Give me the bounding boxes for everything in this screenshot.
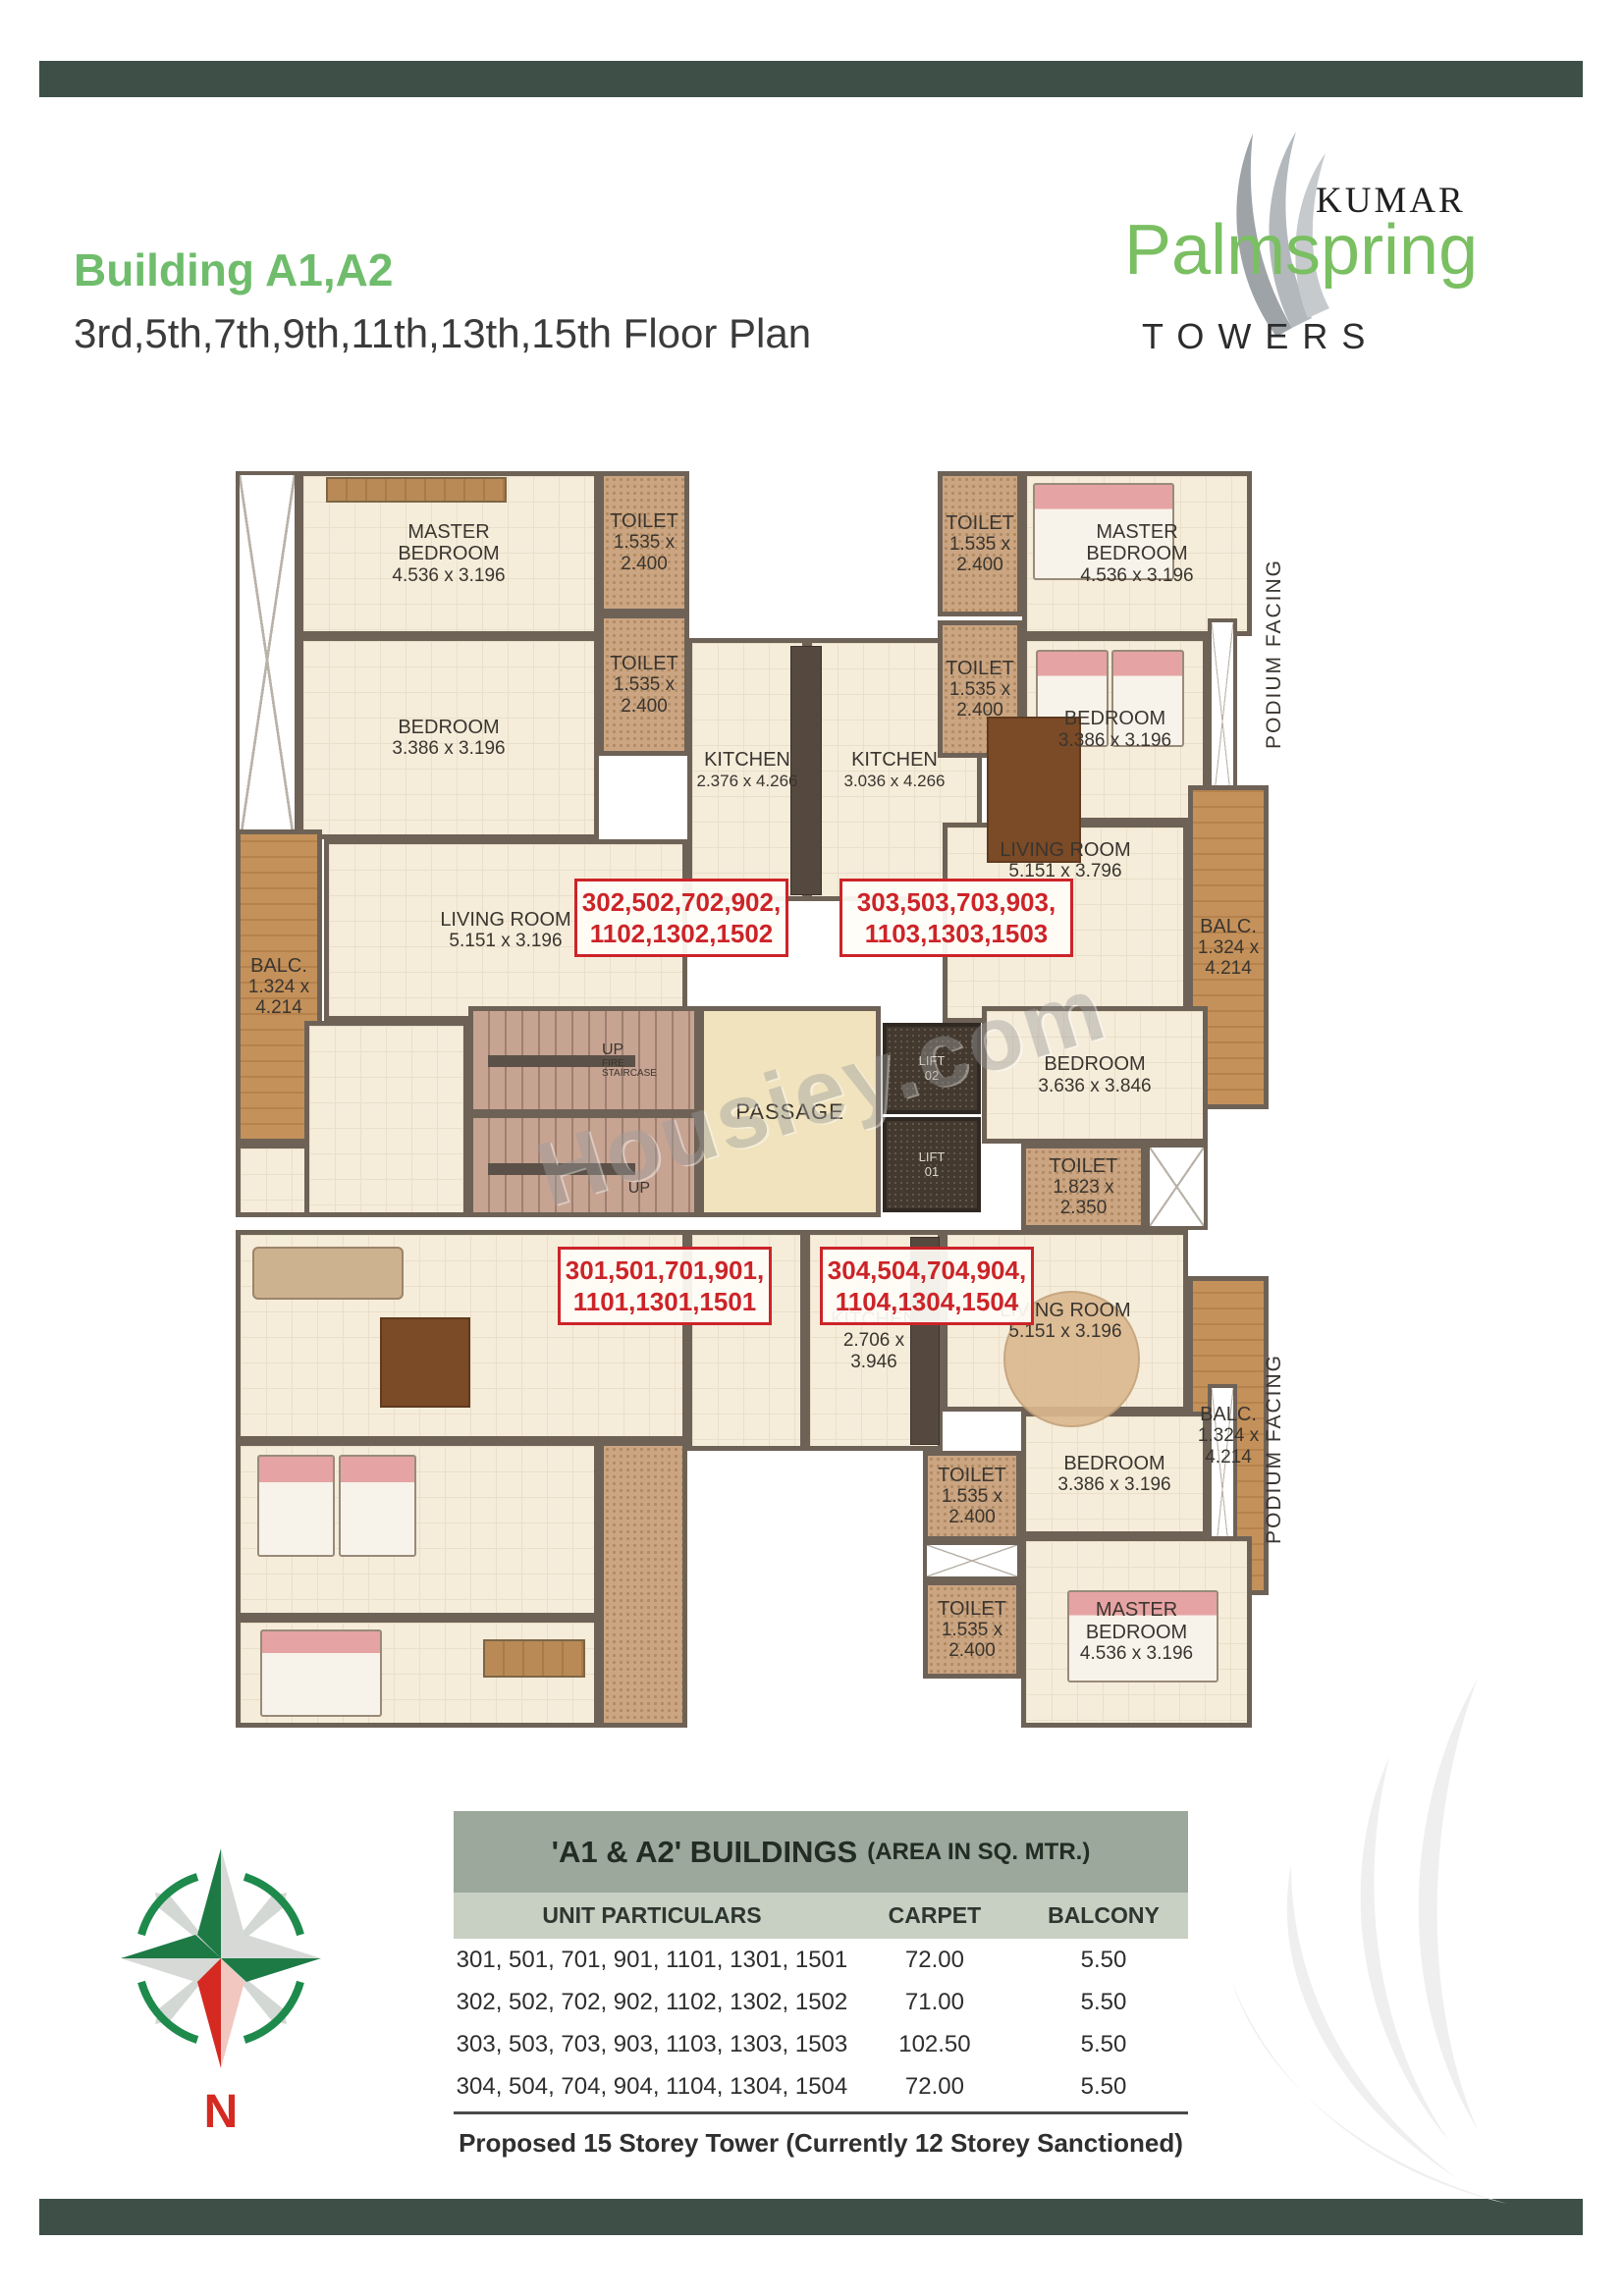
room-name: BALC.: [1193, 1404, 1264, 1425]
room-kitchen-left: KITCHEN 2.376 x 4.266: [687, 638, 807, 901]
cell-balcony: 5.50: [1019, 1947, 1188, 1974]
room-label: TOILET 1.535 x 2.400: [606, 653, 682, 717]
unit-line-2: 1104,1304,1504: [828, 1286, 1026, 1318]
room-toilet-top-left-1: TOILET 1.535 x 2.400: [599, 471, 689, 614]
page-title: Building A1,A2: [74, 243, 393, 296]
room-dims: 1.535 x 2.400: [934, 1486, 1010, 1528]
cell-carpet: 102.50: [850, 2031, 1019, 2058]
room-dims: 3.386 x 3.196: [1058, 730, 1171, 751]
room-dims: 1.324 x 4.214: [241, 977, 317, 1019]
room-dims: 2.376 x 4.266: [696, 772, 797, 790]
area-table: 'A1 & A2' BUILDINGS (AREA IN SQ. MTR.) U…: [454, 1811, 1188, 2159]
top-green-band: [39, 61, 1583, 97]
unit-box-304: 304,504,704,904, 1104,1304,1504: [820, 1247, 1034, 1325]
table-row: 304, 504, 704, 904, 1104, 1304, 1504 72.…: [454, 2065, 1188, 2108]
room-toilet-top-left-2: TOILET 1.535 x 2.400: [599, 614, 689, 756]
room-label: BALC. 1.324 x 4.214: [1193, 916, 1264, 980]
unit-box-301: 301,501,701,901, 1101,1301,1501: [558, 1247, 772, 1325]
room-name: LIVING ROOM: [440, 909, 570, 931]
page-subtitle: 3rd,5th,7th,9th,11th,13th,15th Floor Pla…: [74, 310, 811, 357]
room-label: TOILET 1.535 x 2.400: [934, 1465, 1010, 1528]
table-row: 302, 502, 702, 902, 1102, 1302, 1502 71.…: [454, 1981, 1188, 2023]
logo-palmspring-text: Palmspring: [1124, 210, 1478, 291]
cell-units: 303, 503, 703, 903, 1103, 1303, 1503: [454, 2031, 850, 2058]
room-name: BEDROOM: [1057, 1453, 1170, 1474]
unit-box-303: 303,503,703,903, 1103,1303,1503: [839, 879, 1073, 957]
unit-line-1: 304,504,704,904,: [828, 1255, 1026, 1287]
column-balcony: BALCONY: [1019, 1902, 1188, 1929]
brochure-page: Building A1,A2 3rd,5th,7th,9th,11th,13th…: [0, 0, 1624, 2296]
room-dims: 3.036 x 4.266: [843, 772, 945, 790]
room-name: MASTER BEDROOM: [1082, 521, 1192, 565]
unit-line-1: 302,502,702,902,: [582, 886, 781, 919]
compass-rose: N: [103, 1831, 339, 2145]
furniture-bed: [260, 1629, 382, 1717]
unit-line-1: 303,503,703,903,: [857, 886, 1056, 919]
room-name: TOILET: [606, 653, 682, 674]
table-title: 'A1 & A2' BUILDINGS: [552, 1835, 858, 1870]
cell-balcony: 5.50: [1019, 1989, 1188, 2016]
room-bedroom-bottom-right: BEDROOM 3.386 x 3.196: [1021, 1412, 1208, 1536]
cell-balcony: 5.50: [1019, 2073, 1188, 2101]
podium-facing-label-top: PODIUM FACING: [1263, 545, 1296, 763]
room-label: TOILET 1.535 x 2.400: [934, 1598, 1010, 1662]
furniture-bed: [257, 1455, 335, 1557]
room-label: TOILET 1.823 x 2.350: [1046, 1155, 1122, 1219]
room-name: BALC.: [241, 955, 317, 977]
room-name: BEDROOM: [1058, 708, 1171, 729]
room-dims: 1.535 x 2.400: [934, 1620, 1010, 1662]
room-dims: 4.536 x 3.196: [392, 565, 505, 586]
lift-label: LIFT 01: [919, 1150, 946, 1179]
compass-icon: N: [103, 1831, 339, 2145]
cell-carpet: 72.00: [850, 2073, 1019, 2101]
room-dims: 3.386 x 3.196: [392, 738, 505, 759]
room-name: KITCHEN: [843, 749, 945, 771]
room-label: BEDROOM 3.386 x 3.196: [1058, 708, 1171, 751]
room-dims: 3.386 x 3.196: [1057, 1474, 1170, 1495]
unit-box-302: 302,502,702,902, 1102,1302,1502: [574, 879, 788, 957]
furniture-sofa: [252, 1247, 404, 1300]
room-label: MASTER BEDROOM 4.536 x 3.196: [392, 521, 505, 586]
room-name: BEDROOM: [392, 717, 505, 738]
room-name: LIVING ROOM: [1000, 839, 1130, 861]
furniture-dining-table: [380, 1317, 470, 1408]
cell-units: 304, 504, 704, 904, 1104, 1304, 1504: [454, 2073, 850, 2101]
column-carpet: CARPET: [850, 1902, 1019, 1929]
duct-shaft: [236, 471, 298, 849]
room-label: TOILET 1.535 x 2.400: [943, 658, 1017, 721]
room-dims: 4.536 x 3.196: [1080, 565, 1193, 586]
room-name: BALC.: [1193, 916, 1264, 937]
room-toilet-top-right-1: TOILET 1.535 x 2.400: [938, 471, 1022, 616]
room-dims: 1.823 x 2.350: [1046, 1177, 1122, 1219]
room-label: BEDROOM 3.386 x 3.196: [1057, 1453, 1170, 1496]
room-name: MASTER BEDROOM: [1082, 1599, 1192, 1643]
room-label: BALC. 1.324 x 4.214: [241, 955, 317, 1019]
room-label: KITCHEN 3.036 x 4.266: [843, 749, 945, 789]
brand-logo: KUMAR Palmspring TOWERS: [1114, 126, 1546, 410]
room-dims: 1.535 x 2.400: [606, 674, 682, 717]
staircase-label: UP FIRE STAIRCASE: [602, 1042, 686, 1080]
table-title-band: 'A1 & A2' BUILDINGS (AREA IN SQ. MTR.): [454, 1811, 1188, 1893]
floor-plan: MASTER BEDROOM 4.536 x 3.196 TOILET 1.53…: [233, 461, 1279, 1737]
room-name: MASTER BEDROOM: [394, 521, 504, 565]
unit-line-2: 1103,1303,1503: [857, 918, 1056, 950]
room-dims: 1.324 x 4.214: [1193, 937, 1264, 980]
cell-units: 302, 502, 702, 902, 1102, 1302, 1502: [454, 1989, 850, 2016]
tower-note: Proposed 15 Storey Tower (Currently 12 S…: [454, 2114, 1188, 2159]
podium-facing-label-bottom: PODIUM FACING: [1263, 1340, 1296, 1558]
table-row: 303, 503, 703, 903, 1103, 1303, 1503 102…: [454, 2023, 1188, 2065]
room-dims: 4.536 x 3.196: [1080, 1643, 1193, 1664]
column-unit-particulars: UNIT PARTICULARS: [454, 1902, 850, 1929]
table-title-note: (AREA IN SQ. MTR.): [867, 1839, 1090, 1866]
room-label: LIVING ROOM 5.151 x 3.796: [1000, 828, 1130, 882]
room-label: TOILET 1.535 x 2.400: [606, 510, 682, 574]
room-bedroom-top-left: BEDROOM 3.386 x 3.196: [298, 636, 599, 839]
room-name: TOILET: [943, 658, 1017, 679]
unit-line-1: 301,501,701,901,: [566, 1255, 764, 1287]
room-label: TOILET 1.535 x 2.400: [943, 512, 1017, 576]
room-dims: 1.535 x 2.400: [943, 534, 1017, 576]
duct-shaft: [1146, 1144, 1208, 1230]
room-dims: 3.636 x 3.846: [1038, 1076, 1151, 1096]
unit-numbers: 304,504,704,904, 1104,1304,1504: [828, 1255, 1026, 1318]
logo-towers-text: TOWERS: [1142, 316, 1379, 357]
furniture-bed: [339, 1455, 416, 1557]
room-label: MASTER BEDROOM 4.536 x 3.196: [1080, 1599, 1193, 1664]
up-label: UP: [602, 1042, 686, 1059]
palm-watermark-icon: [1232, 1669, 1624, 2228]
room-name: TOILET: [934, 1598, 1010, 1620]
cell-units: 301, 501, 701, 901, 1101, 1301, 1501: [454, 1947, 850, 1974]
unit-line-2: 1102,1302,1502: [582, 918, 781, 950]
cell-carpet: 72.00: [850, 1947, 1019, 1974]
lift-number: 01: [919, 1165, 946, 1179]
unit-numbers: 301,501,701,901, 1101,1301,1501: [566, 1255, 764, 1318]
room-label: MASTER BEDROOM 4.536 x 3.196: [1080, 521, 1193, 586]
cell-carpet: 71.00: [850, 1989, 1019, 2016]
table-column-headers: UNIT PARTICULARS CARPET BALCONY: [454, 1893, 1188, 1939]
room-toilet-mid-right: TOILET 1.823 x 2.350: [1021, 1144, 1146, 1230]
room-dims: 1.324 x 4.214: [1193, 1425, 1264, 1468]
lift-word: LIFT: [919, 1150, 946, 1164]
staircase-word-label: STAIRCASE: [602, 1069, 686, 1080]
room-label: LIVING ROOM 5.151 x 3.196: [440, 909, 570, 952]
room-name: KITCHEN: [696, 749, 797, 771]
room-name: TOILET: [1046, 1155, 1122, 1177]
room-dims: 5.151 x 3.196: [440, 931, 570, 951]
unit-line-2: 1101,1301,1501: [566, 1286, 764, 1318]
lift-01: LIFT 01: [883, 1117, 981, 1212]
room-dims: 1.535 x 2.400: [943, 679, 1017, 721]
room-toilet-bottom-right-2: TOILET 1.535 x 2.400: [923, 1580, 1021, 1679]
room-toilet-bottom-right-1: TOILET 1.535 x 2.400: [923, 1451, 1021, 1541]
room-name: TOILET: [943, 512, 1017, 534]
north-label: N: [204, 2086, 239, 2138]
room-name: TOILET: [934, 1465, 1010, 1486]
core-corridor-left: [304, 1021, 468, 1217]
unit-numbers: 302,502,702,902, 1102,1302,1502: [582, 886, 781, 950]
room-label: BEDROOM 3.386 x 3.196: [392, 717, 505, 760]
table-row: 301, 501, 701, 901, 1101, 1301, 1501 72.…: [454, 1939, 1188, 1981]
unit-numbers: 303,503,703,903, 1103,1303,1503: [857, 886, 1056, 950]
room-bath-strip-bottom-left: [599, 1441, 687, 1728]
room-label: BALC. 1.324 x 4.214: [1193, 1404, 1264, 1468]
room-name: TOILET: [606, 510, 682, 532]
room-dims: 1.535 x 2.400: [606, 532, 682, 574]
duct-shaft: [923, 1541, 1021, 1580]
room-dims: 2.706 x 3.946: [836, 1330, 912, 1372]
furniture-wardrobe: [326, 477, 507, 503]
furniture-desk: [483, 1639, 585, 1678]
cell-balcony: 5.50: [1019, 2031, 1188, 2058]
room-label: KITCHEN 2.376 x 4.266: [696, 749, 797, 789]
